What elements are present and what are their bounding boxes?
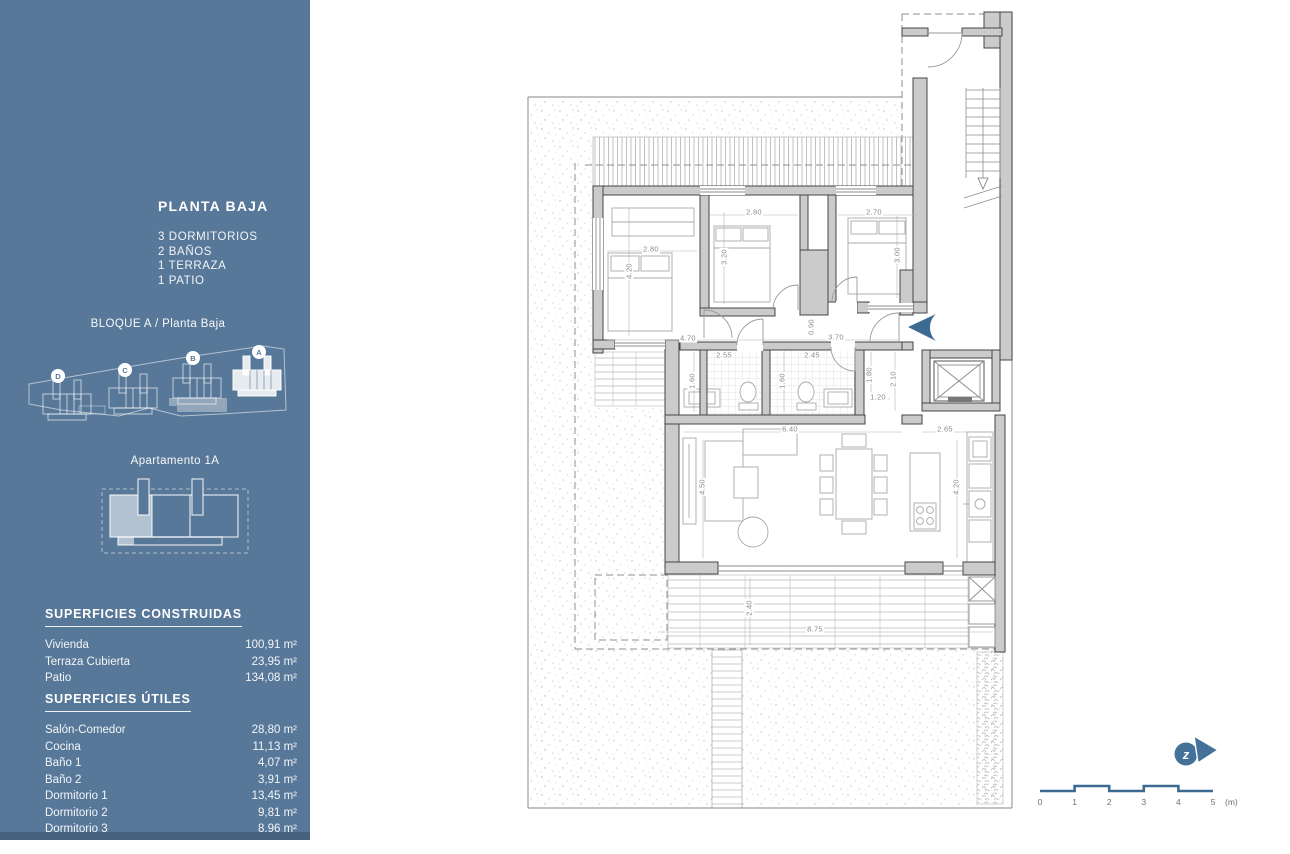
dimension-label: 4.70 bbox=[679, 334, 697, 343]
svg-text:z: z bbox=[1182, 747, 1190, 762]
dimension-label: 1.20 bbox=[869, 393, 887, 402]
apartment-diagram bbox=[100, 477, 250, 559]
elevator bbox=[934, 361, 984, 402]
feature-item: 1 PATIO bbox=[158, 274, 268, 289]
feature-item: 1 TERRAZA bbox=[158, 259, 268, 274]
dimension-label: 2.55 bbox=[715, 351, 733, 360]
area-value: 13,45 m² bbox=[252, 788, 297, 805]
area-row: Dormitorio 29,81 m² bbox=[45, 805, 297, 822]
area-value: 9,81 m² bbox=[258, 805, 297, 822]
unit-a-highlighted bbox=[233, 356, 281, 396]
usable-areas-table: SUPERFICIES ÚTILES Salón-Comedor28,80 m²… bbox=[45, 690, 297, 854]
dimension-label: 3.70 bbox=[827, 333, 845, 342]
feature-list: 3 DORMITORIOS2 BAÑOS1 TERRAZA1 PATIO bbox=[158, 230, 268, 288]
dimension-label: 3.00 bbox=[893, 246, 902, 264]
area-row: Baño 23,91 m² bbox=[45, 772, 297, 789]
area-row: Patio134,08 m² bbox=[45, 670, 297, 687]
area-label: Dormitorio 1 bbox=[45, 788, 108, 805]
dimension-label: 3.20 bbox=[720, 248, 729, 266]
apartment-locator: Apartamento 1A bbox=[80, 455, 270, 559]
area-value: 3,91 m² bbox=[258, 772, 297, 789]
vegetation-strip bbox=[977, 652, 1003, 804]
area-value: 28,80 m² bbox=[252, 722, 297, 739]
area-label: Baño 1 bbox=[45, 755, 81, 772]
dimension-label: 1.60 bbox=[688, 372, 697, 390]
scale-tick-label: 3 bbox=[1141, 797, 1146, 807]
dimension-label: 2.80 bbox=[745, 208, 763, 217]
area-value: 100,91 m² bbox=[245, 637, 297, 654]
page-title: PLANTA BAJA bbox=[158, 198, 268, 214]
built-areas-table: SUPERFICIES CONSTRUIDAS Vivienda100,91 m… bbox=[45, 605, 297, 687]
area-row: Salón-Comedor28,80 m² bbox=[45, 722, 297, 739]
apartment-title: Apartamento 1A bbox=[80, 455, 270, 467]
scale-bar bbox=[1040, 786, 1213, 791]
feature-item: 3 DORMITORIOS bbox=[158, 230, 268, 245]
usable-areas-heading: SUPERFICIES ÚTILES bbox=[45, 692, 191, 712]
badge-b-label: B bbox=[190, 354, 196, 363]
area-row: Baño 14,07 m² bbox=[45, 755, 297, 772]
plan-intro: PLANTA BAJA 3 DORMITORIOS2 BAÑOS1 TERRAZ… bbox=[158, 198, 268, 288]
area-value: 4,07 m² bbox=[258, 755, 297, 772]
side-deck-steps bbox=[595, 352, 668, 406]
garden-walkway bbox=[712, 650, 742, 808]
unit-c bbox=[109, 374, 157, 414]
area-label: Patio bbox=[45, 670, 71, 687]
dimension-label: 1.80 bbox=[865, 366, 874, 384]
north-compass-icon: z bbox=[1175, 736, 1219, 766]
area-label: Salón-Comedor bbox=[45, 722, 126, 739]
pool-shape bbox=[169, 398, 227, 412]
info-sidebar: PLANTA BAJA 3 DORMITORIOS2 BAÑOS1 TERRAZ… bbox=[0, 0, 310, 840]
scale-tick-label: 4 bbox=[1176, 797, 1181, 807]
dimension-label: 4.20 bbox=[952, 478, 961, 496]
scale-tick-label: 1 bbox=[1072, 797, 1077, 807]
dimension-label: 2.80 bbox=[642, 245, 660, 254]
entrance-arrow-icon bbox=[908, 314, 936, 341]
dimension-label: 2.45 bbox=[803, 351, 821, 360]
dimension-label: 2.70 bbox=[865, 208, 883, 217]
dimension-label: 2.65 bbox=[936, 425, 954, 434]
area-row: Vivienda100,91 m² bbox=[45, 637, 297, 654]
area-row: Terraza Cubierta23,95 m² bbox=[45, 654, 297, 671]
area-label: Vivienda bbox=[45, 637, 89, 654]
area-row: Dormitorio 113,45 m² bbox=[45, 788, 297, 805]
pergola-roof bbox=[593, 137, 920, 186]
built-areas-heading: SUPERFICIES CONSTRUIDAS bbox=[45, 607, 242, 627]
area-label: Baño 2 bbox=[45, 772, 81, 789]
badge-a-label: A bbox=[256, 348, 262, 357]
badge-d-label: D bbox=[55, 372, 61, 381]
dimension-label: 8.75 bbox=[806, 625, 824, 634]
scale-tick-label: 5 bbox=[1211, 797, 1216, 807]
site-plan-diagram: D C B A bbox=[21, 340, 295, 426]
area-label: Cocina bbox=[45, 739, 81, 756]
area-label: Terraza Cubierta bbox=[45, 654, 130, 671]
scale-tick-label: 0 bbox=[1038, 797, 1043, 807]
area-row: Cocina11,13 m² bbox=[45, 739, 297, 756]
area-value: 23,95 m² bbox=[252, 654, 297, 671]
block-locator: BLOQUE A / Planta Baja bbox=[18, 318, 298, 426]
sidebar-footer-strip bbox=[0, 832, 310, 840]
area-value: 134,08 m² bbox=[245, 670, 297, 687]
dimension-label: 2.10 bbox=[889, 370, 898, 388]
floorplan-page: PLANTA BAJA 3 DORMITORIOS2 BAÑOS1 TERRAZ… bbox=[0, 0, 1290, 840]
floor-plan-area: z 2.802.702.804.203.203.004.703.700.902.… bbox=[310, 0, 1290, 840]
scale-unit-label: (m) bbox=[1225, 797, 1238, 807]
utility-boxes bbox=[969, 577, 995, 647]
dimension-label: 6.40 bbox=[781, 425, 799, 434]
block-title: BLOQUE A / Planta Baja bbox=[18, 318, 298, 330]
dimension-label: 0.90 bbox=[807, 318, 816, 336]
dimension-label: 1.60 bbox=[778, 372, 787, 390]
area-label: Dormitorio 2 bbox=[45, 805, 108, 822]
staircase bbox=[964, 88, 1002, 208]
badge-c-label: C bbox=[122, 366, 128, 375]
floor-plan-drawing: z bbox=[310, 0, 1290, 840]
scale-tick-label: 2 bbox=[1107, 797, 1112, 807]
dimension-label: 4.50 bbox=[698, 478, 707, 496]
feature-item: 2 BAÑOS bbox=[158, 245, 268, 260]
dimension-label: 2.40 bbox=[745, 599, 754, 617]
dimension-label: 4.20 bbox=[625, 262, 634, 280]
area-value: 11,13 m² bbox=[252, 739, 297, 756]
